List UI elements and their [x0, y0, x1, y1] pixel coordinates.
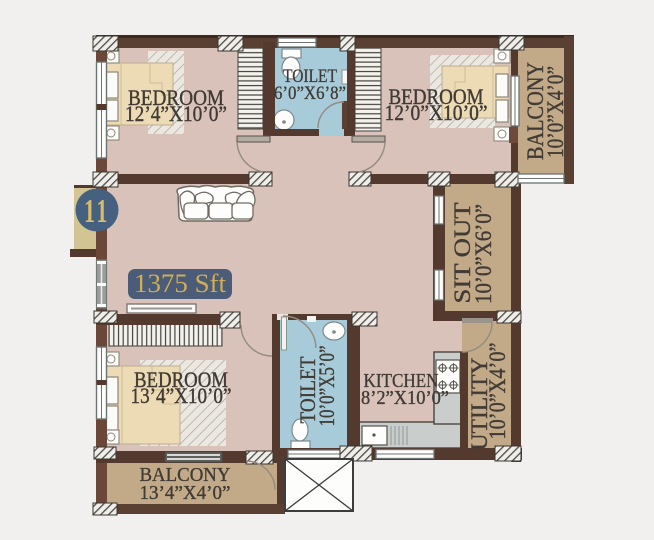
- svg-text:6’0”X6’8”: 6’0”X6’8”: [274, 83, 346, 104]
- svg-text:1375 Sft: 1375 Sft: [134, 269, 227, 298]
- svg-text:13’4”X10’0”: 13’4”X10’0”: [131, 383, 232, 408]
- svg-text:13’4”X4’0”: 13’4”X4’0”: [140, 482, 231, 504]
- svg-text:12’0”X10’0”: 12’0”X10’0”: [385, 100, 488, 125]
- svg-text:8’2”X10’0”: 8’2”X10’0”: [361, 387, 449, 409]
- svg-text:10’0”X4’0”: 10’0”X4’0”: [543, 66, 568, 158]
- svg-text:10’0”X4’0”: 10’0”X4’0”: [485, 343, 510, 440]
- svg-text:11: 11: [84, 193, 110, 230]
- svg-text:10’0”X5’0”: 10’0”X5’0”: [314, 346, 339, 427]
- svg-text:12’4”X10’0”: 12’4”X10’0”: [125, 101, 227, 126]
- svg-text:10’0”X6’0”: 10’0”X6’0”: [471, 204, 496, 304]
